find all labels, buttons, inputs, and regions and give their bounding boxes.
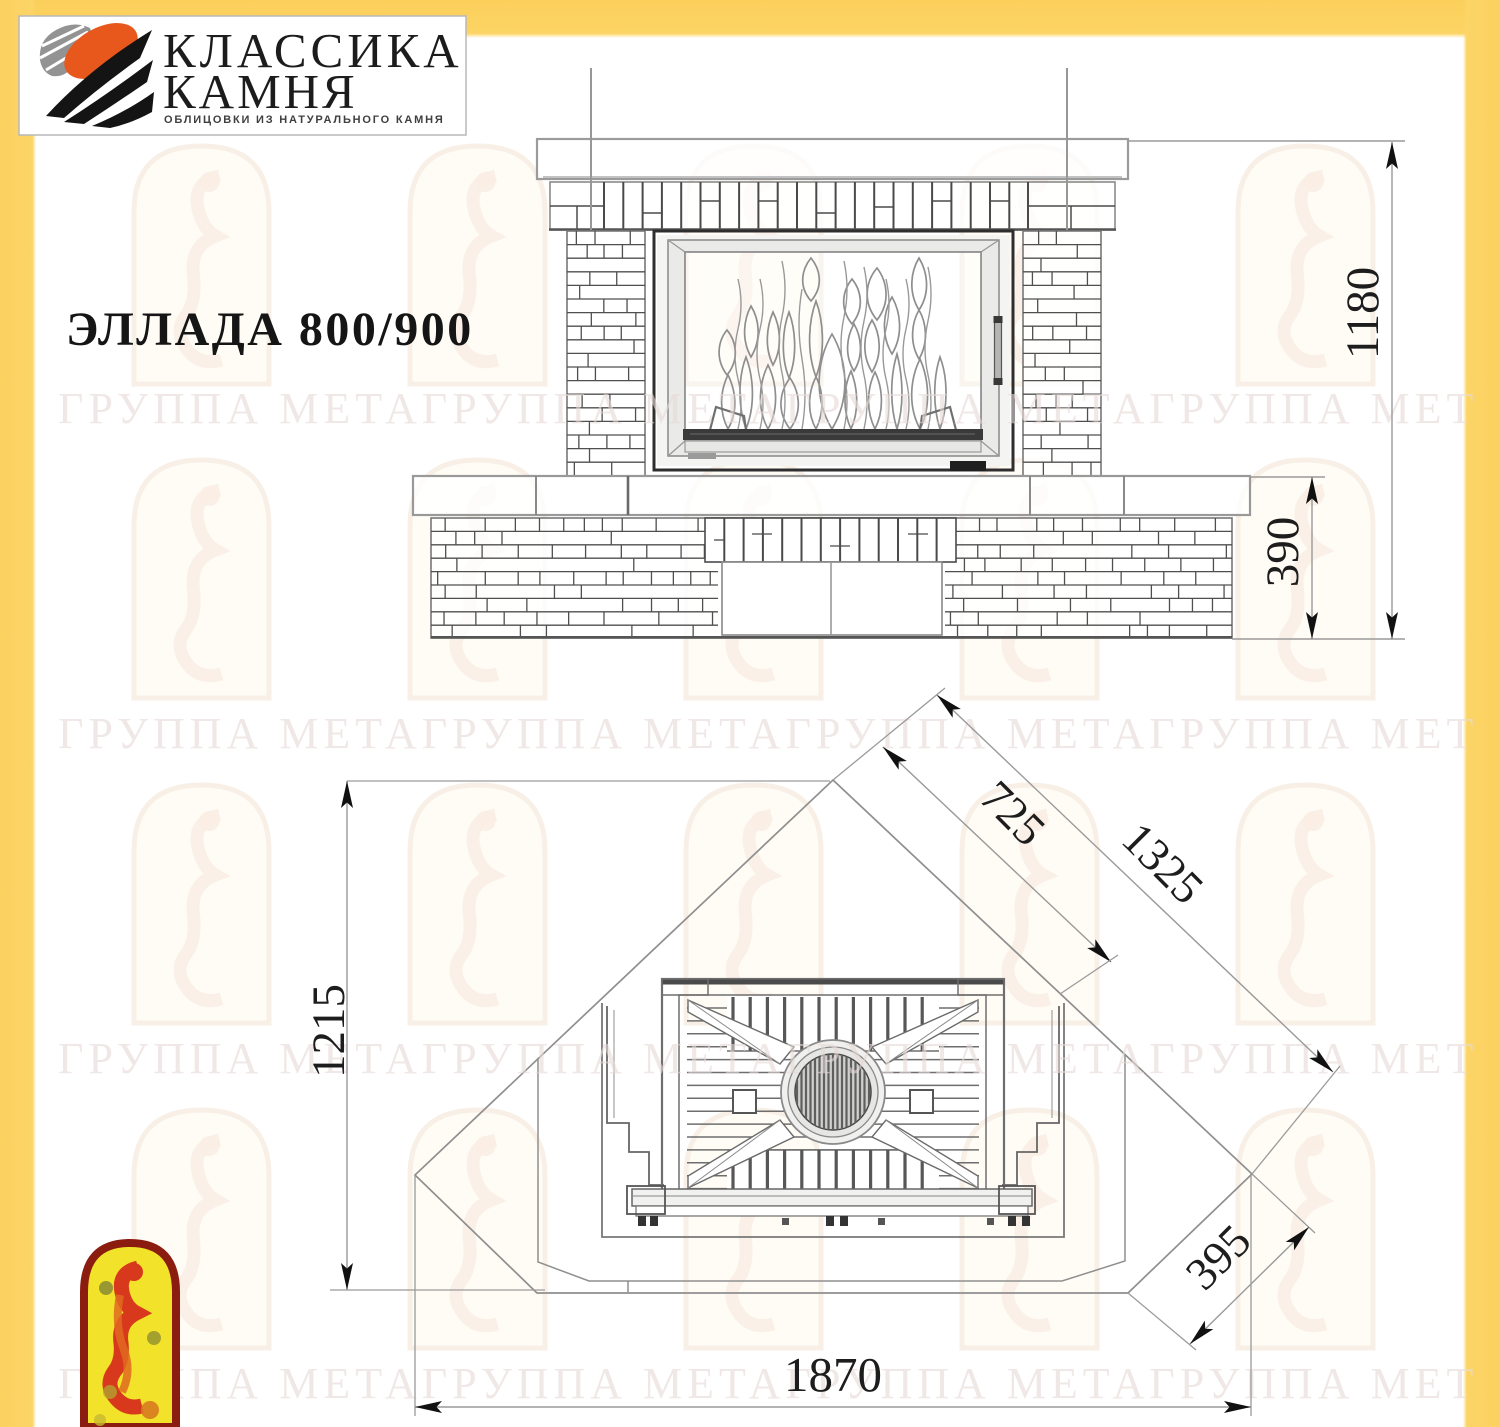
svg-text:1215: 1215 — [303, 984, 355, 1078]
svg-text:ГРУППА МЕТАГРУППА МЕТАГРУППА М: ГРУППА МЕТАГРУППА МЕТАГРУППА МЕТАГРУППА … — [58, 709, 1478, 758]
svg-text:ГРУППА МЕТАГРУППА МЕТАГРУППА М: ГРУППА МЕТАГРУППА МЕТАГРУППА МЕТАГРУППА … — [58, 1034, 1478, 1083]
svg-text:КАМНЯ: КАМНЯ — [163, 64, 358, 119]
svg-text:ГРУППА МЕТАГРУППА МЕТАГРУППА М: ГРУППА МЕТАГРУППА МЕТАГРУППА МЕТАГРУППА … — [58, 384, 1478, 433]
svg-text:1325: 1325 — [1112, 812, 1213, 913]
svg-text:390: 390 — [1257, 517, 1309, 588]
svg-text:ОБЛИЦОВКИ ИЗ НАТУРАЛЬНОГО КАМН: ОБЛИЦОВКИ ИЗ НАТУРАЛЬНОГО КАМНЯ — [164, 114, 445, 126]
svg-text:1870: 1870 — [784, 1347, 882, 1402]
svg-text:ГРУППА МЕТАГРУППА МЕТАГРУППА М: ГРУППА МЕТАГРУППА МЕТАГРУППА МЕТАГРУППА … — [58, 1359, 1478, 1408]
svg-text:1180: 1180 — [1337, 267, 1389, 359]
